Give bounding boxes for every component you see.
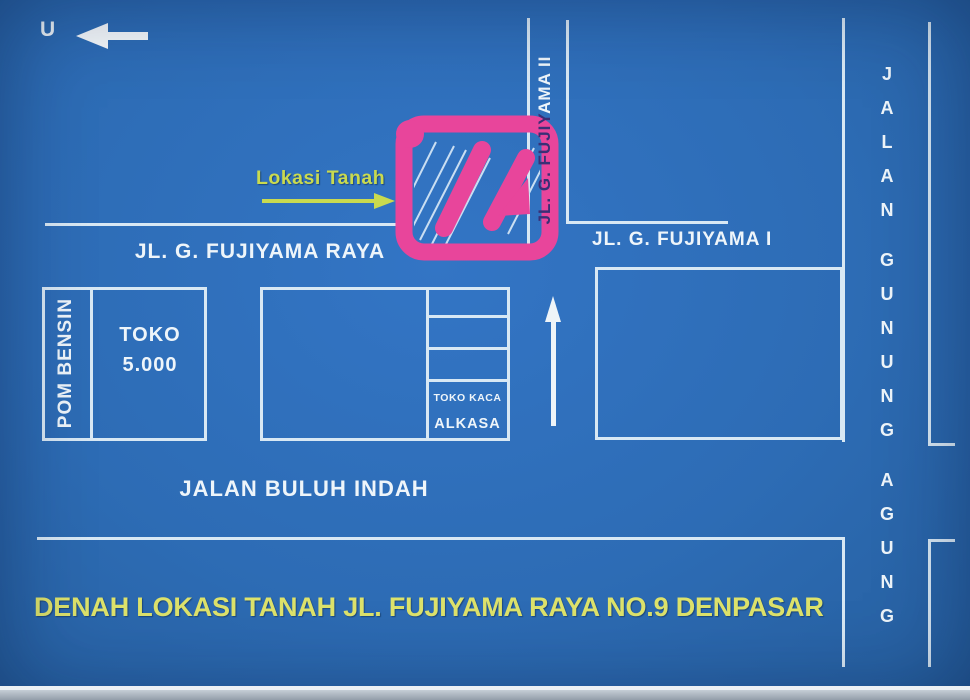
up-arrow-icon	[543, 296, 563, 428]
street-name-fujiyama-2-covered: JL. G. FUJIY	[535, 114, 554, 225]
toko-kaca-label: TOKO KACA	[426, 392, 509, 404]
callout-arrow-icon	[262, 193, 396, 209]
road-line-fujiyama2-right	[566, 20, 569, 224]
plot-diagonal-1	[444, 150, 482, 228]
road-line-gunung-agung-right-upper	[928, 22, 931, 446]
bottom-border-band	[0, 690, 970, 700]
road-line-gunung-agung-right-stub-upper	[928, 443, 955, 446]
road-line-gunung-agung-right-stub-lower	[928, 539, 955, 542]
toko-5000-label: TOKO 5.000	[95, 320, 205, 380]
street-name-fujiyama-raya: JL. G. FUJIYAMA RAYA	[120, 240, 400, 264]
street-name-fujiyama-2-visible: AMA II	[535, 56, 554, 114]
road-line-fujiyama-raya	[45, 223, 403, 226]
central-building-row1-line	[426, 315, 507, 318]
toko-5000-line1: TOKO	[95, 320, 205, 350]
pom-bensin-label: POM BENSIN	[55, 283, 79, 443]
right-block-outline	[595, 267, 843, 440]
alkasa-label: ALKASA	[426, 416, 509, 432]
pom-bensin-divider	[90, 287, 93, 438]
street-name-buluh-indah: JALAN BULUH INDAH	[168, 476, 440, 502]
street-name-gunung-agung-word3: AGUNG	[866, 470, 908, 640]
toko-5000-line2: 5.000	[95, 350, 205, 380]
plot-corner-blob	[396, 120, 424, 148]
map-title: DENAH LOKASI TANAH JL. FUJIYAMA RAYA NO.…	[34, 592, 824, 623]
street-name-fujiyama-2: JL. G. FUJIYAMA II	[535, 52, 561, 228]
north-label: U	[40, 18, 55, 42]
central-building-row2-line	[426, 347, 507, 350]
road-line-gunung-agung-right-lower	[928, 539, 931, 667]
north-arrow-icon	[76, 23, 150, 49]
callout-label: Lokasi Tanah	[256, 167, 385, 190]
road-line-gunung-agung-left-lower	[842, 537, 845, 667]
road-line-buluh-indah	[37, 537, 845, 540]
location-sketch-map: U	[0, 0, 970, 700]
central-building-row3-line	[426, 379, 507, 382]
street-name-gunung-agung-word2: GUNUNG	[866, 250, 908, 454]
street-name-gunung-agung-word1: JALAN	[866, 64, 908, 234]
road-line-fujiyama1-top	[566, 221, 728, 224]
street-name-fujiyama-1: JL. G. FUJIYAMA I	[592, 229, 777, 251]
